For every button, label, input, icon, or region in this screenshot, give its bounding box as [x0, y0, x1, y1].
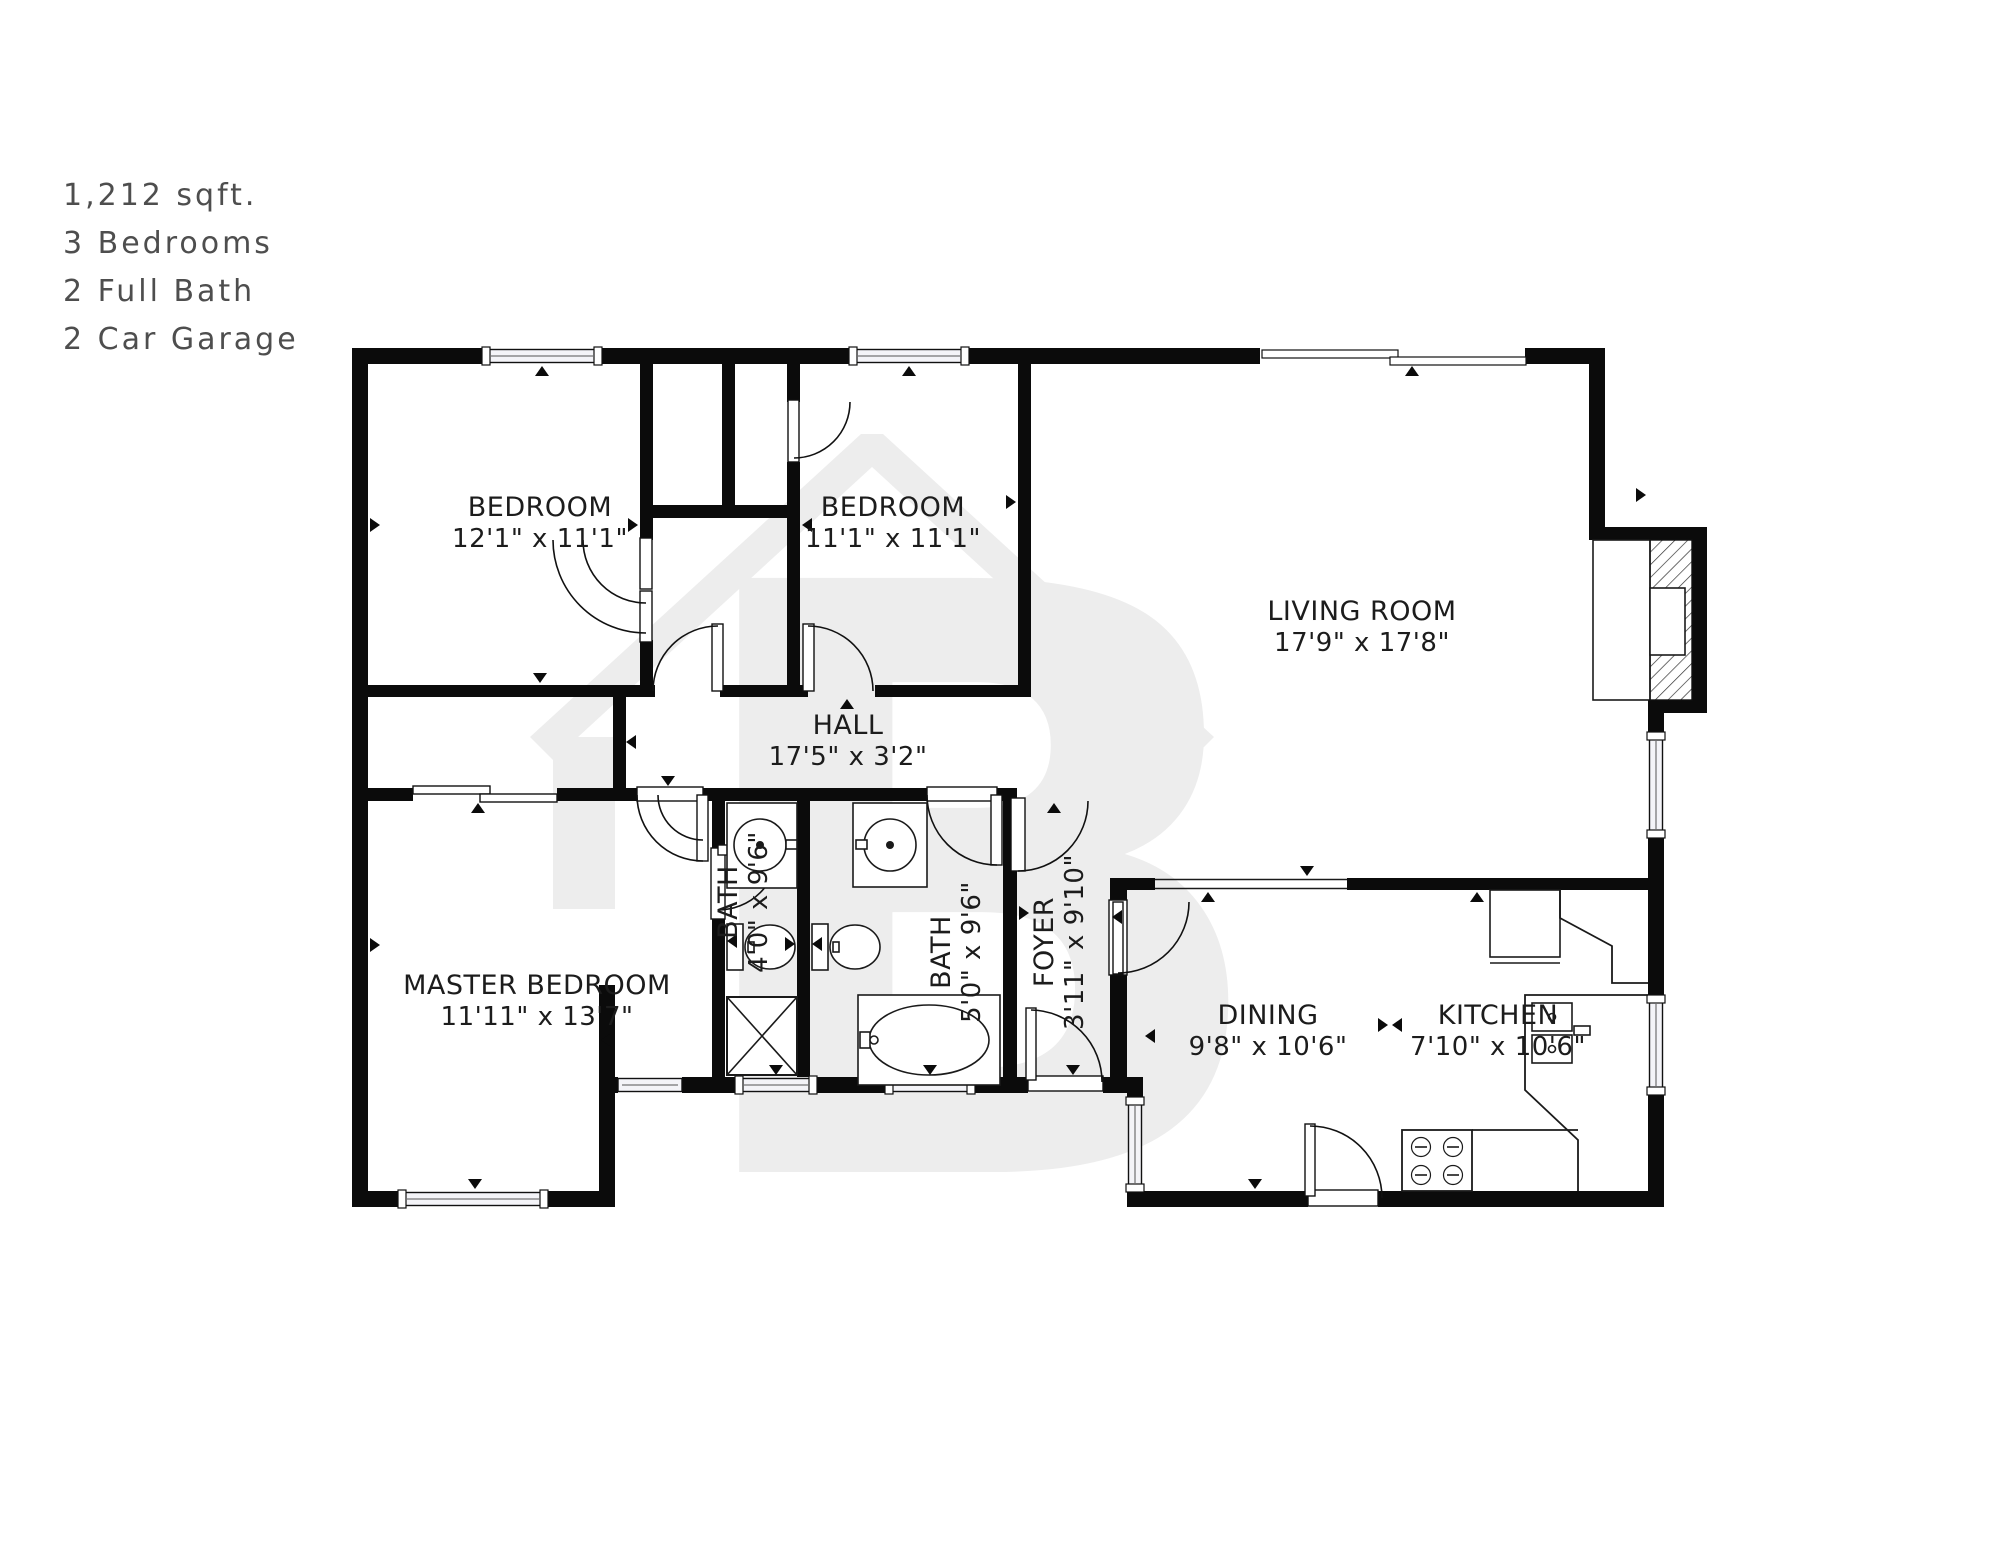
window-bath-shower	[618, 1079, 682, 1092]
bath2-sink	[853, 803, 927, 887]
room-label-master-bedroom: MASTER BEDROOM	[403, 970, 671, 1001]
room-dims-bath-1: 4'0" x 9'6"	[744, 831, 774, 973]
room-dims-hall: 17'5" x 3'2"	[769, 742, 928, 772]
info-line-2: 2 Full Bath	[63, 274, 255, 309]
room-label-living-room: LIVING ROOM	[1267, 596, 1456, 627]
direction-marker	[468, 1179, 482, 1189]
direction-marker	[1378, 1018, 1388, 1032]
window-kitchen	[1647, 995, 1665, 1095]
room-dims-dining: 9'8" x 10'6"	[1189, 1032, 1348, 1062]
direction-marker	[370, 518, 380, 532]
window-bath1	[735, 1076, 817, 1094]
info-line-0: 1,212 sqft.	[63, 178, 257, 213]
room-label-kitchen: KITCHEN	[1438, 1000, 1559, 1031]
info-panel: 1,212 sqft.3 Bedrooms2 Full Bath2 Car Ga…	[63, 178, 299, 357]
direction-marker	[902, 366, 916, 376]
room-dims-bedroom-1: 12'1" x 11'1"	[452, 524, 628, 554]
direction-marker	[370, 938, 380, 952]
direction-marker	[1300, 866, 1314, 876]
room-label-hall: HALL	[813, 710, 884, 741]
direction-marker	[471, 803, 485, 813]
fireplace	[1593, 540, 1692, 700]
kitchen-stove	[1402, 1130, 1472, 1191]
closet-slider	[413, 786, 557, 802]
room-label-bath-2: BATH	[926, 915, 957, 989]
info-line-1: 3 Bedrooms	[63, 226, 273, 261]
window-bedroom2	[849, 347, 969, 365]
info-line-3: 2 Car Garage	[63, 322, 299, 357]
bath2-toilet	[812, 924, 880, 970]
room-label-bedroom-2: BEDROOM	[821, 492, 965, 523]
direction-marker	[1405, 366, 1419, 376]
window-bedroom1	[482, 347, 602, 365]
bath1-shower	[727, 997, 797, 1075]
direction-marker	[628, 518, 638, 532]
window-living-slider	[1262, 350, 1526, 365]
watermark-bar	[553, 737, 615, 909]
direction-marker	[1392, 1018, 1402, 1032]
room-label-dining: DINING	[1217, 1000, 1318, 1031]
room-label-bath-1: BATH	[713, 865, 744, 939]
direction-marker	[533, 673, 547, 683]
direction-marker	[1636, 488, 1646, 502]
kitchen-fridge	[1490, 890, 1560, 963]
window-living-right	[1647, 732, 1665, 838]
floorplan-svg: B	[0, 0, 2000, 1545]
room-dims-living-room: 17'9" x 17'8"	[1274, 628, 1450, 658]
direction-marker	[626, 735, 636, 749]
door-kitchen-exterior	[1305, 1124, 1382, 1206]
room-label-foyer: FOYER	[1029, 897, 1060, 987]
direction-marker	[535, 366, 549, 376]
room-label-bedroom-1: BEDROOM	[468, 492, 612, 523]
direction-marker	[1470, 892, 1484, 902]
window-master	[398, 1190, 548, 1208]
floorplan-page: B	[0, 0, 2000, 1545]
room-dims-foyer: 3'11" x 9'10"	[1060, 854, 1090, 1030]
room-dims-master-bedroom: 11'11" x 13'7"	[441, 1002, 634, 1032]
window-dining	[1126, 1097, 1144, 1192]
room-dims-bath-2: 5'0" x 9'6"	[957, 881, 987, 1023]
room-dims-bedroom-2: 11'1" x 11'1"	[805, 524, 981, 554]
room-dims-kitchen: 7'10" x 10'6"	[1410, 1032, 1586, 1062]
